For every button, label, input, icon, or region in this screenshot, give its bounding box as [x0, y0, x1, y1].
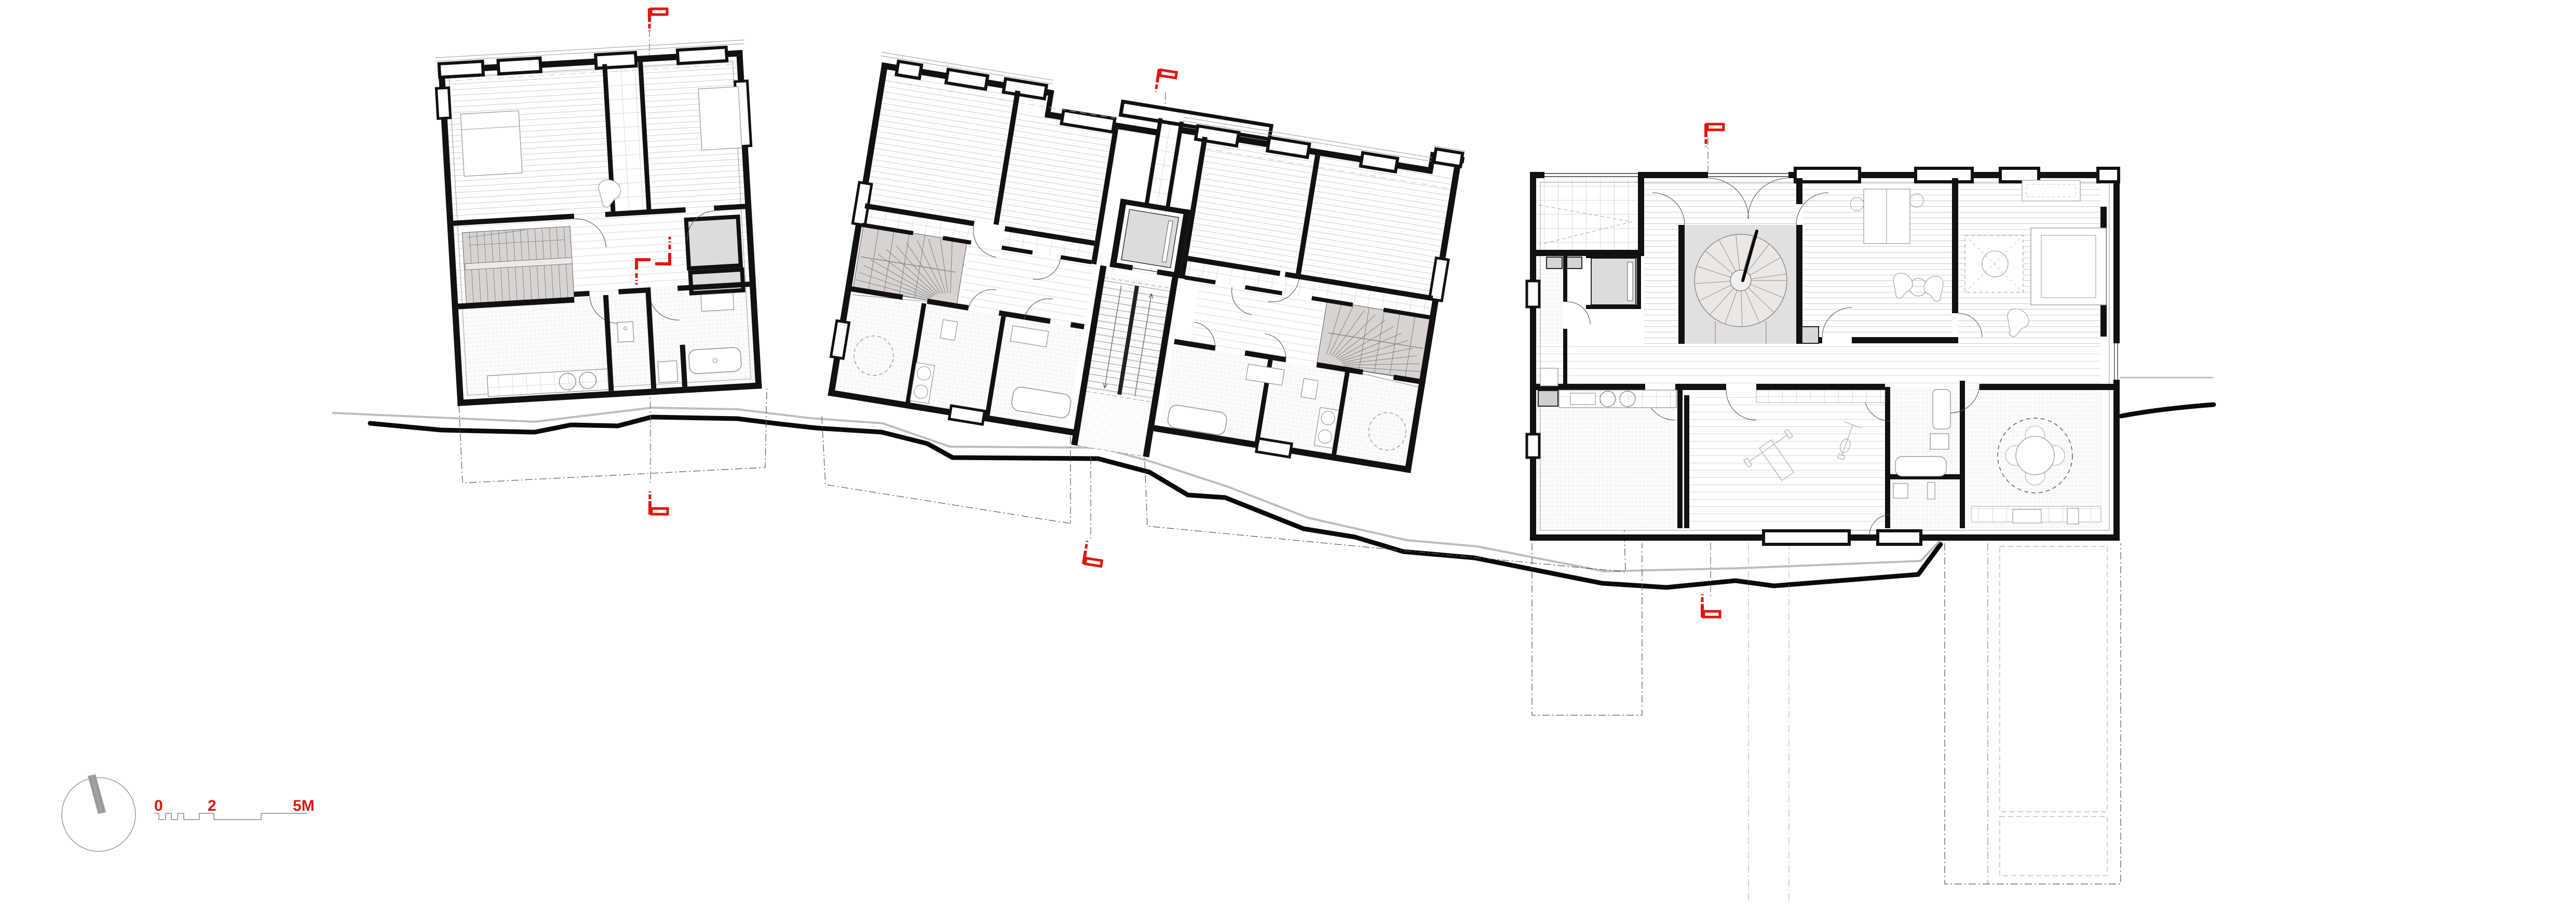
svg-text:5M: 5M [293, 797, 315, 814]
svg-text:2: 2 [208, 797, 216, 814]
svg-text:0: 0 [154, 797, 163, 814]
